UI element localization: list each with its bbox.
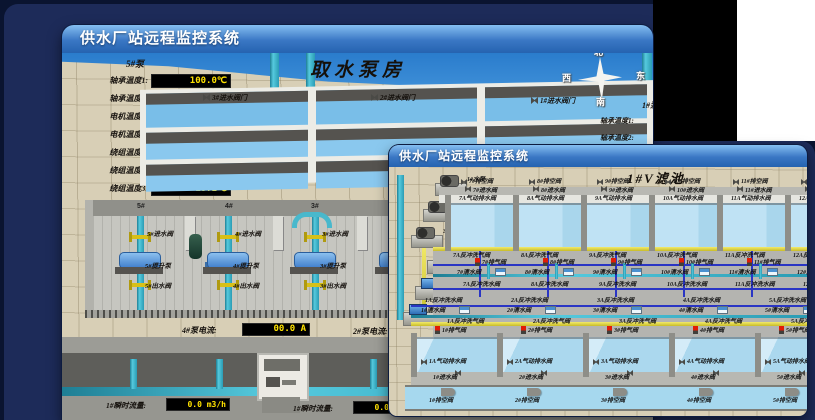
clean-header-pipe: [411, 315, 807, 318]
air-release-valve-icon[interactable]: [607, 326, 612, 334]
white-backdrop: [737, 0, 815, 141]
panel-row-label: 绕组温度3:: [82, 185, 148, 193]
water-main-pipe: [397, 175, 404, 320]
bay-number: 5#: [137, 203, 145, 210]
filter-cell-water: [761, 337, 807, 372]
cell-air-release-valve-label: 5#排气阀: [786, 328, 807, 335]
cell-backwash-air-valve-label: 8A反冲洗气阀: [521, 253, 558, 260]
cell-air-release-valve-label: 4#排气阀: [700, 328, 724, 335]
drain-elbow-pipe: [441, 388, 455, 396]
cell-inlet-valve-label: 3#进水阀: [605, 375, 629, 382]
panel-row-label: 轴承温度2:: [82, 95, 148, 103]
window1-title: 供水厂站远程监控系统: [80, 30, 240, 47]
filter-cell-water: [519, 203, 581, 247]
window2-title: 供水厂站远程监控系统: [399, 149, 529, 163]
air-release-valve-icon[interactable]: [435, 326, 440, 334]
cell-backwash-water-valve-label: 5A反冲洗水阀: [769, 298, 806, 305]
flow-left-label: 1#瞬时流量:: [106, 400, 146, 411]
flow-left-value: 0.0 m3/h: [166, 398, 230, 411]
riser-pipe: [270, 53, 279, 89]
cell-empty-valve-label: 9#排空阀: [605, 179, 629, 186]
air-release-valve-icon[interactable]: [679, 258, 684, 266]
cell-pneumatic-drain-label: 2A气动排水阀: [515, 359, 552, 366]
filter-scene: 1#V滤池 1#水泵2#水泵3#水泵 1#风机2#风机3#风机 7#排空阀7#进…: [389, 167, 807, 416]
clean-water-tank-icon[interactable]: [717, 306, 728, 314]
air-release-valve-icon[interactable]: [611, 258, 616, 266]
panel-row-value: 100.0℃: [151, 74, 231, 88]
drain-header-pipe: [411, 305, 807, 307]
filter-cell-water: [503, 337, 583, 372]
filter-cell-water: [587, 203, 649, 247]
cell-backwash-air-valve-label: 10A反冲洗气阀: [657, 253, 697, 260]
cell-empty-valve-label: 2#排空阀: [515, 398, 539, 405]
flow-right-label: 1#瞬时流量:: [293, 403, 333, 414]
pump-bay: 5#进水阀5#提升泵5#出水阀: [99, 216, 183, 310]
cell-pneumatic-drain-label: 3A气动排水阀: [601, 359, 638, 366]
scene1-title: 取水泵房: [310, 55, 406, 82]
clean-water-tank-icon[interactable]: [459, 306, 470, 314]
pump-icon[interactable]: [416, 227, 435, 239]
pump1-data-panel-partial: 1#泵 轴承温度1: 轴承温度2:: [587, 100, 653, 150]
clean-water-tank-icon[interactable]: [699, 268, 710, 276]
surge-tank: [189, 234, 202, 259]
compass-east: 东: [636, 69, 645, 82]
flow-meter-icon[interactable]: [257, 353, 309, 401]
bay-pump-label: 3#提升泵: [320, 260, 346, 270]
clean-water-tank-icon[interactable]: [495, 268, 506, 276]
cell-inlet-valve-label: 10#进水阀: [677, 188, 704, 195]
drain-elbow-pipe: [785, 388, 799, 396]
pump1-panel-header: 1#泵: [642, 100, 653, 111]
compass-north: 北: [594, 53, 603, 58]
cell-inlet-valve-label: 8#进水阀: [541, 188, 565, 195]
cell-backwash-water-valve-label: 10A反冲洗水阀: [667, 282, 707, 289]
cell-backwash-water-valve-label: 3A反冲洗水阀: [597, 298, 634, 305]
pump-room-left-wall: [85, 200, 93, 318]
cell-empty-valve-label: 8#排空阀: [537, 179, 561, 186]
clean-water-tank-icon[interactable]: [631, 306, 642, 314]
cell-backwash-air-valve-label: 12A反冲洗气阀: [793, 253, 807, 260]
current-right-label: 2#泵电流:: [353, 326, 388, 337]
cell-clean-water-valve-label: 2#清水阀: [507, 308, 531, 315]
cell-empty-valve-label: 4#排空阀: [687, 398, 711, 405]
tank-cell: [146, 130, 308, 160]
air-release-valve-icon[interactable]: [747, 258, 752, 266]
cell-inlet-valve-label: 4#进水阀: [691, 375, 715, 382]
pump-icon[interactable]: [440, 175, 459, 187]
cell-pneumatic-drain-label: 5A气动排水阀: [773, 359, 807, 366]
cell-clean-water-valve-label: 3#清水阀: [593, 308, 617, 315]
bay-inlet-valve-label: 4#进水阀: [235, 228, 261, 238]
bay-number: 3#: [311, 203, 319, 210]
cell-pneumatic-drain-label: 9A气动排水阀: [595, 196, 632, 203]
drain-elbow-pipe: [699, 388, 713, 396]
black-backdrop: [653, 0, 737, 141]
cell-backwash-air-valve-label: 1A反冲洗气阀: [447, 319, 484, 326]
clean-water-tank-icon[interactable]: [803, 306, 807, 314]
cell-inlet-valve-label: 2#进水阀: [519, 375, 543, 382]
u-pipe: [292, 212, 332, 228]
bay-outlet-valve-label: 4#出水阀: [233, 280, 259, 290]
cell-backwash-air-valve-label: 5A反冲洗气阀: [791, 319, 807, 326]
air-release-valve-icon[interactable]: [521, 326, 526, 334]
flow-meter-body: [266, 377, 280, 387]
panel-row-label: 绕组温度2:: [82, 167, 148, 175]
clean-water-tank-icon[interactable]: [563, 268, 574, 276]
filter-cell-water: [723, 203, 785, 247]
clean-water-tank-icon[interactable]: [767, 268, 778, 276]
cell-clean-water-valve-label: 7#清水阀: [457, 270, 481, 277]
cell-backwash-air-valve-label: 7A反冲洗气阀: [453, 253, 490, 260]
cell-backwash-water-valve-label: 7A反冲洗水阀: [463, 282, 500, 289]
cell-clean-water-valve-label: 10#清水阀: [661, 270, 688, 277]
filter-cell-water: [417, 337, 497, 372]
cell-inlet-valve-label: 9#进水阀: [609, 188, 633, 195]
pump-bay: 4#进水阀4#提升泵4#出水阀: [187, 216, 271, 310]
intake-valve-label: 3#进水阀门: [212, 93, 247, 103]
cell-pneumatic-drain-label: 11A气动排水阀: [731, 196, 771, 203]
panel-row-label: 电机温度1:: [82, 113, 148, 121]
cell-clean-water-valve-label: 11#清水阀: [729, 270, 756, 277]
cell-air-release-valve-label: 7#排气阀: [482, 260, 506, 267]
clean-water-tank-icon[interactable]: [631, 268, 642, 276]
filter-cell-water: [675, 337, 755, 372]
filter-cell-water: [589, 337, 669, 372]
cell-clean-water-valve-label: 1#清水阀: [421, 308, 445, 315]
cell-air-release-valve-label: 2#排气阀: [528, 328, 552, 335]
bay-pump-label: 4#提升泵: [233, 260, 259, 270]
cell-empty-valve-label: 11#排空阀: [741, 179, 768, 186]
cell-clean-water-valve-label: 9#清水阀: [593, 270, 617, 277]
air-release-valve-icon[interactable]: [475, 258, 480, 266]
cell-backwash-water-valve-label: 9A反冲洗水阀: [599, 282, 636, 289]
pump5-panel-header: 5#泵: [126, 57, 232, 70]
tank-cell: [146, 162, 308, 192]
branch-pipe: [130, 359, 137, 389]
bay-pump-label: 5#提升泵: [145, 260, 171, 270]
cell-clean-water-valve-label: 4#清水阀: [679, 308, 703, 315]
cell-backwash-water-valve-label: 1A反冲洗水阀: [425, 298, 462, 305]
cell-air-release-valve-label: 11#排气阀: [754, 260, 781, 267]
cell-pneumatic-drain-label: 7A气动排水阀: [459, 196, 496, 203]
cell-clean-water-valve-label: 12#清水阀: [797, 270, 807, 277]
bay-inlet-valve-label: 3#进水阀: [322, 228, 348, 238]
panel-row-label: 电机温度2:: [82, 131, 148, 139]
bay-inlet-valve-label: 5#进水阀: [147, 228, 173, 238]
cell-air-release-valve-label: 8#排气阀: [550, 260, 574, 267]
air-release-valve-icon[interactable]: [543, 258, 548, 266]
air-release-valve-icon[interactable]: [693, 326, 698, 334]
drain-elbow-pipe: [613, 388, 627, 396]
air-release-valve-icon[interactable]: [779, 326, 784, 334]
cell-backwash-water-valve-label: 2A反冲洗水阀: [511, 298, 548, 305]
cell-inlet-valve-label: 5#进水阀: [777, 375, 801, 382]
cell-pneumatic-drain-label: 4A气动排水阀: [687, 359, 724, 366]
cell-pneumatic-drain-label: 10A气动排水阀: [663, 196, 703, 203]
cell-empty-valve-label: 3#排空阀: [601, 398, 625, 405]
filter-cell-water: [451, 203, 513, 247]
cell-backwash-air-valve-label: 11A反冲洗气阀: [725, 253, 765, 260]
pump1-row-label: 轴承温度1:: [600, 116, 634, 126]
cell-backwash-air-valve-label: 3A反冲洗气阀: [619, 319, 656, 326]
pump-bay: 3#进水阀3#提升泵3#出水阀: [274, 216, 358, 310]
current-left-value: 00.0 A: [242, 323, 310, 336]
cell-backwash-water-valve-label: 11A反冲洗水阀: [735, 282, 775, 289]
cell-backwash-air-valve-label: 4A反冲洗气阀: [705, 319, 742, 326]
clean-water-tank-icon[interactable]: [545, 306, 556, 314]
cell-inlet-valve-label: 11#进水阀: [745, 188, 772, 195]
panel-row: 轴承温度1:100.0℃: [82, 74, 232, 88]
branch-pipe: [216, 359, 223, 389]
cell-pneumatic-drain-label: 1A气动排水阀: [429, 359, 466, 366]
cell-inlet-valve-label: 1#进水阀: [433, 375, 457, 382]
window1-titlebar[interactable]: 供水厂站远程监控系统: [62, 25, 653, 53]
current-left-label: 4#泵电流:: [182, 325, 217, 336]
panel-row-label: 轴承温度1:: [82, 77, 148, 85]
cell-clean-water-valve-label: 8#清水阀: [525, 270, 549, 277]
pump1-row-label: 轴承温度2:: [600, 133, 634, 143]
flow-meter-pipe: [282, 380, 296, 385]
cell-backwash-water-valve-label: 12A反冲洗水阀: [803, 282, 807, 289]
cell-backwash-water-valve-label: 8A反冲洗水阀: [531, 282, 568, 289]
filter-cell-water: [655, 203, 717, 247]
cell-empty-valve-label: 1#排空阀: [429, 398, 453, 405]
compass-west: 西: [562, 71, 571, 84]
cell-backwash-water-valve-label: 4A反冲洗水阀: [683, 298, 720, 305]
cell-air-release-valve-label: 1#排气阀: [442, 328, 466, 335]
drain-elbow-pipe: [527, 388, 541, 396]
cell-empty-valve-label: 5#排空阀: [773, 398, 797, 405]
panel-row-label: 绕组温度1:: [82, 149, 148, 157]
filter-cell-water: [791, 203, 807, 247]
cell-backwash-air-valve-label: 2A反冲洗气阀: [533, 319, 570, 326]
flow-meter-display: [264, 359, 300, 371]
cell-air-release-valve-label: 3#排气阀: [614, 328, 638, 335]
cell-air-release-valve-label: 9#排气阀: [618, 260, 642, 267]
cell-air-release-valve-label: 10#排气阀: [686, 260, 713, 267]
cell-empty-valve-label: 7#排空阀: [469, 179, 493, 186]
window-filter-pool: 供水厂站远程监控系统 1#V滤池 1#水泵2#水泵3#水泵 1#风机2#风机3#…: [389, 145, 807, 416]
intake-valve-label: 2#进水阀门: [380, 93, 415, 103]
cell-pneumatic-drain-label: 8A气动排水阀: [527, 196, 564, 203]
bay-outlet-valve-label: 3#出水阀: [320, 280, 346, 290]
cell-pneumatic-drain-label: 12A气动排水阀: [799, 196, 807, 203]
bay-outlet-valve-label: 5#出水阀: [145, 280, 171, 290]
branch-pipe: [370, 359, 377, 389]
cell-backwash-air-valve-label: 9A反冲洗气阀: [589, 253, 626, 260]
cell-inlet-valve-label: 7#进水阀: [473, 188, 497, 195]
window2-titlebar[interactable]: 供水厂站远程监控系统: [389, 145, 807, 167]
cell-empty-valve-label: 10#排空阀: [673, 179, 700, 186]
bay-number: 4#: [225, 203, 233, 210]
cell-clean-water-valve-label: 5#清水阀: [765, 308, 789, 315]
